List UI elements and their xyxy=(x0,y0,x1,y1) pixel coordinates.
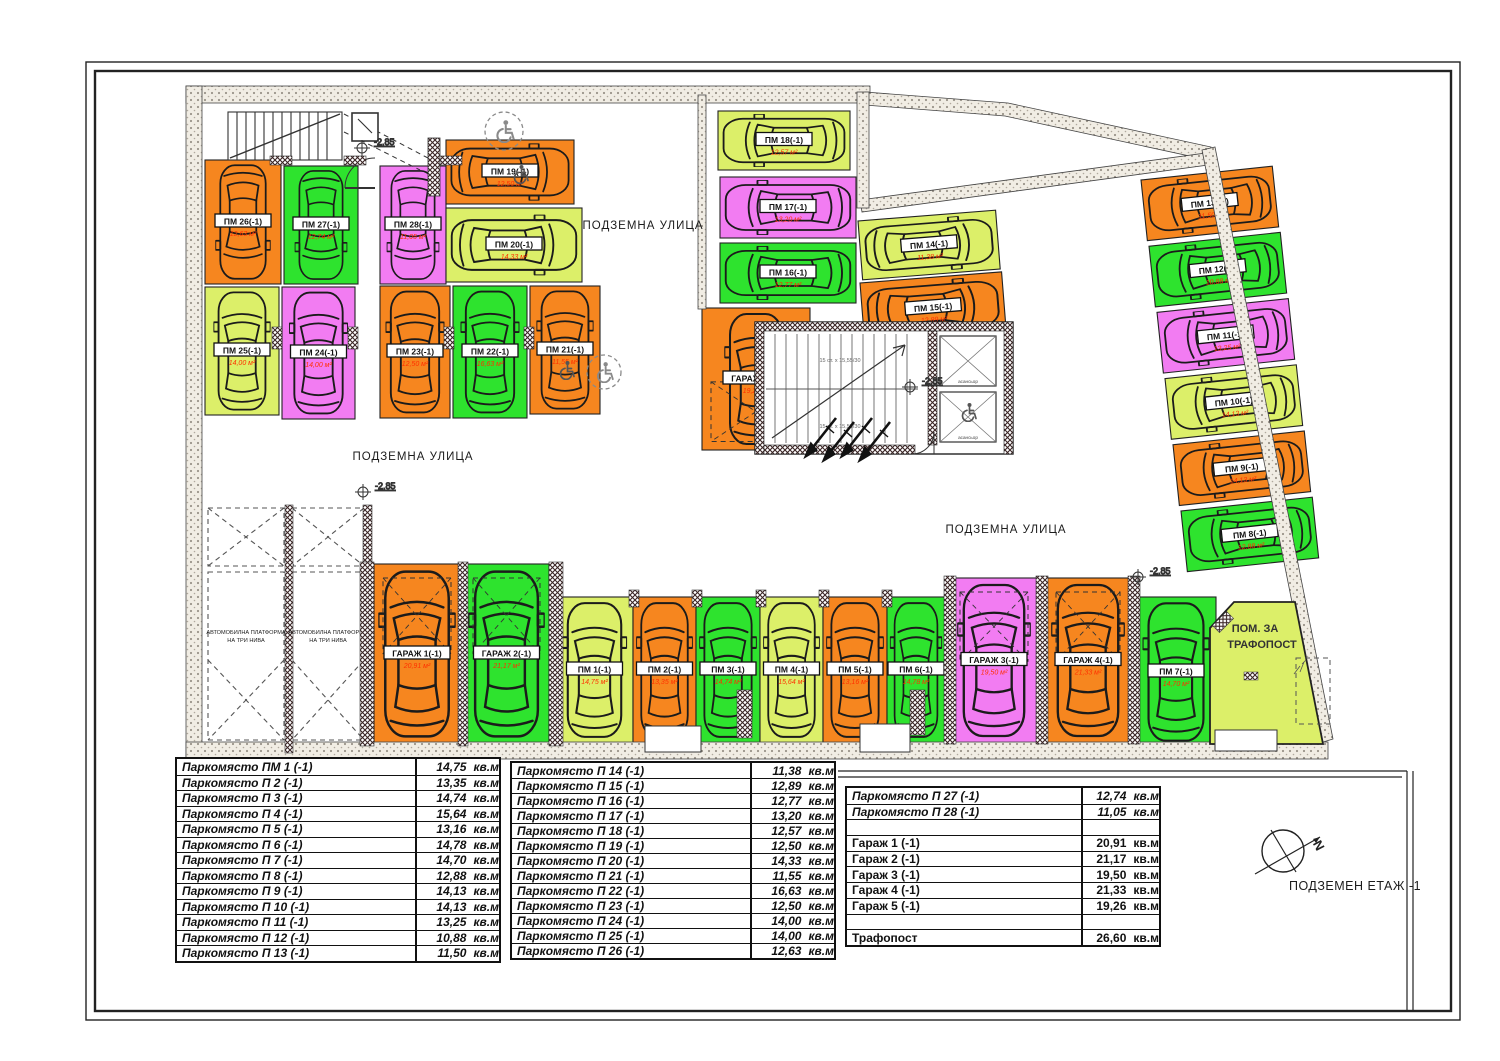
space-name-cell: Гараж 1 (-1) xyxy=(847,836,1083,851)
space-area-cell: 14,70кв.м xyxy=(417,853,499,868)
stall-label: ГАРАЖ 1(-1) xyxy=(392,649,442,659)
space-area-cell: 16,63кв.м xyxy=(752,884,834,898)
parking-stall: ПМ 8(-1)12,88 м² xyxy=(1181,497,1319,571)
space-name-cell: Паркомясто ПМ 1 (-1) xyxy=(177,759,417,775)
stall-label: ПМ 27(-1) xyxy=(302,220,340,230)
space-area-cell: 14,00кв.м xyxy=(752,929,834,943)
table-row: Паркомясто П 22 (-1)16,63кв.м xyxy=(512,883,834,898)
svg-text:АВТОМОБИЛНА ПЛАТФОРМА: АВТОМОБИЛНА ПЛАТФОРМА xyxy=(288,630,367,636)
space-name-cell: Паркомясто П 26 (-1) xyxy=(512,944,752,958)
platform-label-2: АВТОМОБИЛНА ПЛАТФОРМА НА ТРИ НИВА xyxy=(288,630,367,644)
parking-stall: ПМ 9(-1)14,13 м² xyxy=(1173,431,1311,505)
stall-label: ПМ 5(-1) xyxy=(838,665,872,675)
table-row: Паркомясто П 24 (-1)14,00кв.м xyxy=(512,913,834,928)
space-name-cell: Паркомясто П 6 (-1) xyxy=(177,838,417,853)
stall-area: 11,05 м² xyxy=(400,234,427,241)
level-value: -2.85 xyxy=(1150,566,1171,576)
stall-label: ПМ 18(-1) xyxy=(765,135,803,145)
svg-text:АВТОМОБИЛНА ПЛАТФОРМА: АВТОМОБИЛНА ПЛАТФОРМА xyxy=(206,630,285,636)
space-area-cell: 19,26кв.м xyxy=(1083,899,1159,914)
space-area-cell: 13,35кв.м xyxy=(417,776,499,791)
parking-stall: ПМ 10(-1)14,13 м² xyxy=(1165,365,1303,439)
space-name-cell: Паркомясто П 22 (-1) xyxy=(512,884,752,898)
table-row: Гараж 5 (-1)19,26кв.м xyxy=(847,898,1159,914)
space-name-cell: Трафопост xyxy=(847,930,1083,945)
svg-text:асансьор: асансьор xyxy=(958,435,978,440)
stall-label: ПМ 20(-1) xyxy=(495,240,533,250)
stall-area: 15,64 м² xyxy=(778,679,805,686)
parking-stall: ПМ 26(-1)12,63 м² xyxy=(205,160,281,284)
space-area-cell: 12,89кв.м xyxy=(752,779,834,793)
stall-label: ПМ 2(-1) xyxy=(648,665,682,675)
stall-area: 12,50 м² xyxy=(497,181,524,188)
space-area-cell: 12,74кв.м xyxy=(1083,788,1159,804)
stall-label: ПМ 17(-1) xyxy=(769,202,807,212)
stall-area: 14,78 м² xyxy=(903,679,930,686)
svg-text:НА ТРИ НИВА: НА ТРИ НИВА xyxy=(309,638,347,644)
stall-area: 12,63 м² xyxy=(230,231,257,238)
table-row: Паркомясто П 16 (-1)12,77кв.м xyxy=(512,793,834,808)
svg-text:ТРАФОПОСТ: ТРАФОПОСТ xyxy=(1227,639,1297,651)
stall-area: 21,33 м² xyxy=(1074,670,1102,677)
space-name-cell: Гараж 4 (-1) xyxy=(847,883,1083,898)
table-row: Паркомясто П 17 (-1)13,20кв.м xyxy=(512,808,834,823)
wall-niche xyxy=(645,726,701,752)
space-area-cell: 19,50кв.м xyxy=(1083,867,1159,882)
table-row: Паркомясто П 18 (-1)12,57кв.м xyxy=(512,823,834,838)
space-name-cell: Паркомясто П 28 (-1) xyxy=(847,805,1083,820)
space-name-cell: Паркомясто П 5 (-1) xyxy=(177,822,417,837)
stall-area: 13,20 м² xyxy=(775,217,802,224)
street-label-top: ПОДЗЕМНА УЛИЦА xyxy=(582,220,703,232)
parking-stall: ПМ 14(-1)11,38 м² xyxy=(858,210,1000,280)
space-name-cell xyxy=(847,915,1083,930)
area-table-1: Паркомясто ПМ 1 (-1)14,75кв.мПаркомясто … xyxy=(175,757,501,963)
elevator-lower: асансьор xyxy=(940,392,996,442)
space-area-cell: 14,74кв.м xyxy=(417,791,499,806)
parking-stall: ПМ 23(-1)12,50 м² xyxy=(380,286,450,418)
space-area-cell: 13,16кв.м xyxy=(417,822,499,837)
parking-stall: ПМ 17(-1)13,20 м² xyxy=(720,177,856,238)
space-area-cell: 13,25кв.м xyxy=(417,915,499,930)
table-row: Паркомясто П 10 (-1)14,13кв.м xyxy=(177,899,499,915)
stall-area: 12,77 м² xyxy=(775,282,802,289)
stall-area: 12,74 м² xyxy=(308,234,335,241)
stall-area: 11,55 м² xyxy=(552,359,579,366)
space-area-cell: 12,50кв.м xyxy=(752,839,834,853)
stall-label: ПМ 23(-1) xyxy=(396,347,434,357)
table-row: Гараж 4 (-1)21,33кв.м xyxy=(847,882,1159,898)
space-name-cell: Паркомясто П 15 (-1) xyxy=(512,779,752,793)
garage-stall: ГАРАЖ 1(-1)20,91 м² xyxy=(374,564,460,744)
table-row: Гараж 2 (-1)21,17кв.м xyxy=(847,851,1159,867)
space-area-cell: 21,33кв.м xyxy=(1083,883,1159,898)
parking-stall: ПМ 24(-1)14,00 м² xyxy=(282,287,355,419)
table-row: Паркомясто П 3 (-1)14,74кв.м xyxy=(177,790,499,806)
trafo-room-label: ПОМ. ЗА xyxy=(1232,623,1279,635)
space-area-cell: 14,13кв.м xyxy=(417,884,499,899)
stall-area: 20,91 м² xyxy=(403,663,431,670)
stall-label: ПМ 28(-1) xyxy=(394,220,432,230)
svg-text:асансьор: асансьор xyxy=(958,379,978,384)
table-row: Паркомясто П 19 (-1)12,50кв.м xyxy=(512,838,834,853)
space-name-cell: Паркомясто П 14 (-1) xyxy=(512,763,752,778)
table-row: Паркомясто П 7 (-1)14,70кв.м xyxy=(177,852,499,868)
space-name-cell: Гараж 5 (-1) xyxy=(847,899,1083,914)
space-name-cell: Паркомясто П 27 (-1) xyxy=(847,788,1083,804)
stall-area: 16,63 м² xyxy=(477,361,504,368)
space-area-cell: 14,13кв.м xyxy=(417,900,499,915)
space-name-cell: Паркомясто П 4 (-1) xyxy=(177,807,417,822)
level-value: -2.85 xyxy=(375,481,396,491)
table-row: Паркомясто П 8 (-1)12,88кв.м xyxy=(177,868,499,884)
space-area-cell: 12,57кв.м xyxy=(752,824,834,838)
parking-stall: ПМ 25(-1)14,00 м² xyxy=(205,287,279,415)
parking-stall: ПМ 22(-1)16,63 м² xyxy=(453,286,527,418)
table-row: Паркомясто П 13 (-1)11,50кв.м xyxy=(177,945,499,961)
space-name-cell xyxy=(847,820,1083,835)
space-name-cell: Паркомясто П 21 (-1) xyxy=(512,869,752,883)
stall-label: ПМ 16(-1) xyxy=(769,268,807,278)
garage-stall: ГАРАЖ 2(-1)21,17 м² xyxy=(464,564,549,744)
table-row: Трафопост26,60кв.м xyxy=(847,929,1159,945)
stall-area: 19,50 м² xyxy=(981,670,1008,677)
parking-stall: ПМ 16(-1)12,77 м² xyxy=(720,243,856,303)
space-name-cell: Паркомясто П 12 (-1) xyxy=(177,931,417,946)
table-row: Паркомясто П 4 (-1)15,64кв.м xyxy=(177,806,499,822)
table-row: Гараж 1 (-1)20,91кв.м xyxy=(847,835,1159,851)
stall-label: ПМ 24(-1) xyxy=(299,348,337,358)
table-row: Паркомясто П 26 (-1)12,63кв.м xyxy=(512,943,834,958)
space-area-cell: 12,63кв.м xyxy=(752,944,834,958)
stall-area: 12,57 м² xyxy=(771,150,798,157)
stall-area: 14,74 м² xyxy=(715,679,742,686)
space-area-cell: 14,78кв.м xyxy=(417,838,499,853)
table-row xyxy=(847,914,1159,930)
space-area-cell: 21,17кв.м xyxy=(1083,852,1159,867)
level-marker: -2.85 xyxy=(355,481,396,500)
space-area-cell: 11,38кв.м xyxy=(752,763,834,778)
elevator-upper: асансьор xyxy=(940,336,996,386)
space-name-cell: Гараж 3 (-1) xyxy=(847,867,1083,882)
stall-label: ПМ 7(-1) xyxy=(1159,667,1193,677)
space-name-cell: Паркомясто П 20 (-1) xyxy=(512,854,752,868)
space-area-cell xyxy=(1083,915,1159,930)
stall-area: 13,16 м² xyxy=(842,679,869,686)
space-name-cell: Паркомясто П 25 (-1) xyxy=(512,929,752,943)
parking-stall: ПМ 21(-1)11,55 м² xyxy=(530,286,600,414)
space-name-cell: Паркомясто П 17 (-1) xyxy=(512,809,752,823)
parking-stall: ПМ 27(-1)12,74 м² xyxy=(284,166,358,284)
table-row: Паркомясто П 20 (-1)14,33кв.м xyxy=(512,853,834,868)
pillar xyxy=(285,505,293,753)
space-area-cell: 20,91кв.м xyxy=(1083,836,1159,851)
table-row: Паркомясто П 2 (-1)13,35кв.м xyxy=(177,775,499,791)
table-row: Паркомясто П 21 (-1)11,55кв.м xyxy=(512,868,834,883)
stall-label: ПМ 25(-1) xyxy=(223,346,261,356)
stall-label: ГАРАЖ 4(-1) xyxy=(1063,655,1113,665)
parking-stall: ПМ 2(-1)13,35 м² xyxy=(633,597,696,743)
area-table-3: Паркомясто П 27 (-1)12,74кв.мПаркомясто … xyxy=(845,786,1161,947)
stall-label: ПМ 21(-1) xyxy=(546,345,584,355)
space-area-cell: 10,88кв.м xyxy=(417,931,499,946)
table-row: Паркомясто П 25 (-1)14,00кв.м xyxy=(512,928,834,943)
table-row: Паркомясто П 28 (-1)11,05кв.м xyxy=(847,804,1159,820)
parking-stall: ПМ 11(-1)13,25 м² xyxy=(1157,299,1295,373)
stall-label: ГАРАЖ 3(-1) xyxy=(969,655,1019,665)
table-row: Паркомясто П 12 (-1)10,88кв.м xyxy=(177,930,499,946)
table-row: Паркомясто П 23 (-1)12,50кв.м xyxy=(512,898,834,913)
parking-stall: ПМ 7(-1)14,70 м² xyxy=(1136,597,1216,747)
space-name-cell: Паркомясто П 11 (-1) xyxy=(177,915,417,930)
table-row: Паркомясто ПМ 1 (-1)14,75кв.м xyxy=(177,759,499,775)
stall-label: ПМ 6(-1) xyxy=(899,665,933,675)
stall-label: ПМ 26(-1) xyxy=(224,217,262,227)
space-area-cell: 12,77кв.м xyxy=(752,794,834,808)
table-row xyxy=(847,819,1159,835)
space-name-cell: Паркомясто П 13 (-1) xyxy=(177,946,417,961)
parking-stall: ПМ 4(-1)15,64 м² xyxy=(760,597,823,743)
stall-label: ГАРАЖ 2(-1) xyxy=(482,649,532,659)
space-name-cell: Паркомясто П 19 (-1) xyxy=(512,839,752,853)
parking-stall: ПМ 1(-1)14,75 м² xyxy=(556,597,633,743)
wall-niche xyxy=(860,724,910,752)
stall-area: 21,17 м² xyxy=(492,663,520,670)
compass-icon xyxy=(1255,830,1320,874)
space-name-cell: Паркомясто П 7 (-1) xyxy=(177,853,417,868)
table-row: Паркомясто П 15 (-1)12,89кв.м xyxy=(512,778,834,793)
space-area-cell: 11,50кв.м xyxy=(417,946,499,961)
platform-label-1: АВТОМОБИЛНА ПЛАТФОРМА НА ТРИ НИВА xyxy=(206,630,285,644)
stall-area: 14,75 м² xyxy=(581,679,608,686)
parking-stall: ПМ 20(-1)14,33 м² xyxy=(446,208,582,282)
stall-area: 14,70 м² xyxy=(1163,681,1190,688)
space-name-cell: Паркомясто П 10 (-1) xyxy=(177,900,417,915)
stair-note: 15 ст. х 15,55/30 xyxy=(819,358,860,364)
garage-stall: ГАРАЖ 4(-1)21,33 м² xyxy=(1047,578,1129,743)
parking-stall: ПМ 12(-1)10,88 м² xyxy=(1149,232,1287,306)
stall-area: 13,35 м² xyxy=(651,679,678,686)
table-row: Паркомясто П 11 (-1)13,25кв.м xyxy=(177,914,499,930)
svg-text:НА ТРИ НИВА: НА ТРИ НИВА xyxy=(227,638,265,644)
stall-label: ПМ 22(-1) xyxy=(471,347,509,357)
stall-area: 14,33 м² xyxy=(501,254,528,261)
space-name-cell: Паркомясто П 8 (-1) xyxy=(177,869,417,884)
level-value: -2.85 xyxy=(922,376,943,386)
space-name-cell: Паркомясто П 16 (-1) xyxy=(512,794,752,808)
space-name-cell: Гараж 2 (-1) xyxy=(847,852,1083,867)
parking-stall: ПМ 18(-1)12,57 м² xyxy=(718,111,850,170)
space-area-cell: 26,60кв.м xyxy=(1083,930,1159,945)
compass-north-label: N xyxy=(1310,838,1328,853)
stall-area: 14,00 м² xyxy=(305,362,332,369)
space-name-cell: Паркомясто П 24 (-1) xyxy=(512,914,752,928)
space-name-cell: Паркомясто П 23 (-1) xyxy=(512,899,752,913)
space-area-cell: 15,64кв.м xyxy=(417,807,499,822)
space-area-cell: 12,88кв.м xyxy=(417,869,499,884)
pillar xyxy=(363,505,372,567)
space-area-cell: 11,05кв.м xyxy=(1083,805,1159,820)
table-row: Паркомясто П 9 (-1)14,13кв.м xyxy=(177,883,499,899)
space-name-cell: Паркомясто П 3 (-1) xyxy=(177,791,417,806)
table-row: Паркомясто П 27 (-1)12,74кв.м xyxy=(847,788,1159,804)
stall-label: ПМ 4(-1) xyxy=(775,665,809,675)
space-area-cell: 11,55кв.м xyxy=(752,869,834,883)
space-name-cell: Паркомясто П 2 (-1) xyxy=(177,776,417,791)
stall-area: 14,00 м² xyxy=(229,360,256,367)
space-area-cell: 12,50кв.м xyxy=(752,899,834,913)
street-label-left: ПОДЗЕМНА УЛИЦА xyxy=(352,451,473,463)
garage-stall: ГАРАЖ 3(-1)19,50 м² xyxy=(951,578,1037,743)
space-name-cell: Паркомясто П 18 (-1) xyxy=(512,824,752,838)
table-row: Гараж 3 (-1)19,50кв.м xyxy=(847,866,1159,882)
space-area-cell xyxy=(1083,820,1159,835)
space-area-cell: 14,75кв.м xyxy=(417,759,499,775)
street-label-right: ПОДЗЕМНА УЛИЦА xyxy=(945,524,1066,536)
area-table-2: Паркомясто П 14 (-1)11,38кв.мПаркомясто … xyxy=(510,761,836,960)
space-area-cell: 13,20кв.м xyxy=(752,809,834,823)
level-value: -2.85 xyxy=(374,137,395,147)
stall-label: ПМ 3(-1) xyxy=(711,665,745,675)
stall-area: 12,50 м² xyxy=(402,361,429,368)
parking-stall: ПМ 5(-1)13,16 м² xyxy=(823,597,887,743)
space-area-cell: 14,33кв.м xyxy=(752,854,834,868)
floor-title: ПОДЗЕМЕН ЕТАЖ -1 xyxy=(1289,879,1421,893)
space-area-cell: 14,00кв.м xyxy=(752,914,834,928)
level-marker: -2.85 xyxy=(1130,566,1171,585)
table-row: Паркомясто П 5 (-1)13,16кв.м xyxy=(177,821,499,837)
table-row: Паркомясто П 14 (-1)11,38кв.м xyxy=(512,763,834,778)
stall-label: ПМ 1(-1) xyxy=(578,665,612,675)
table-row: Паркомясто П 6 (-1)14,78кв.м xyxy=(177,837,499,853)
space-name-cell: Паркомясто П 9 (-1) xyxy=(177,884,417,899)
